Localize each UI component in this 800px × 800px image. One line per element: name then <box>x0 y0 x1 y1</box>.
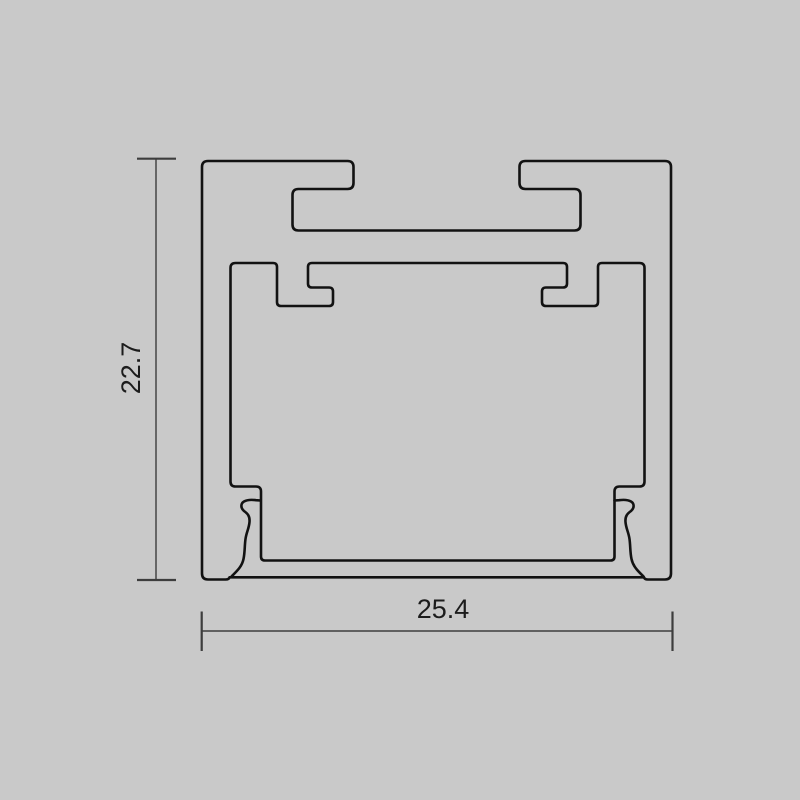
height-dimension-group: 22.7 <box>116 159 176 580</box>
profile-inner-cavity <box>231 263 645 561</box>
outer-contour-path <box>202 161 671 580</box>
dimension-drawing-canvas: 22.7 25.4 <box>0 0 800 800</box>
profile-outer-contour <box>202 161 671 580</box>
foot-notch-left-path <box>232 500 261 577</box>
inner-cavity-path <box>231 263 645 561</box>
profile-foot-notch-right <box>615 500 644 577</box>
profile-cross-section-drawing: 22.7 25.4 <box>0 0 800 800</box>
profile-foot-notch-left <box>232 500 261 577</box>
foot-notch-right-path <box>615 500 644 577</box>
width-dimension-label: 25.4 <box>417 594 470 624</box>
width-dimension-group: 25.4 <box>202 594 673 651</box>
height-dimension-label: 22.7 <box>116 342 146 395</box>
